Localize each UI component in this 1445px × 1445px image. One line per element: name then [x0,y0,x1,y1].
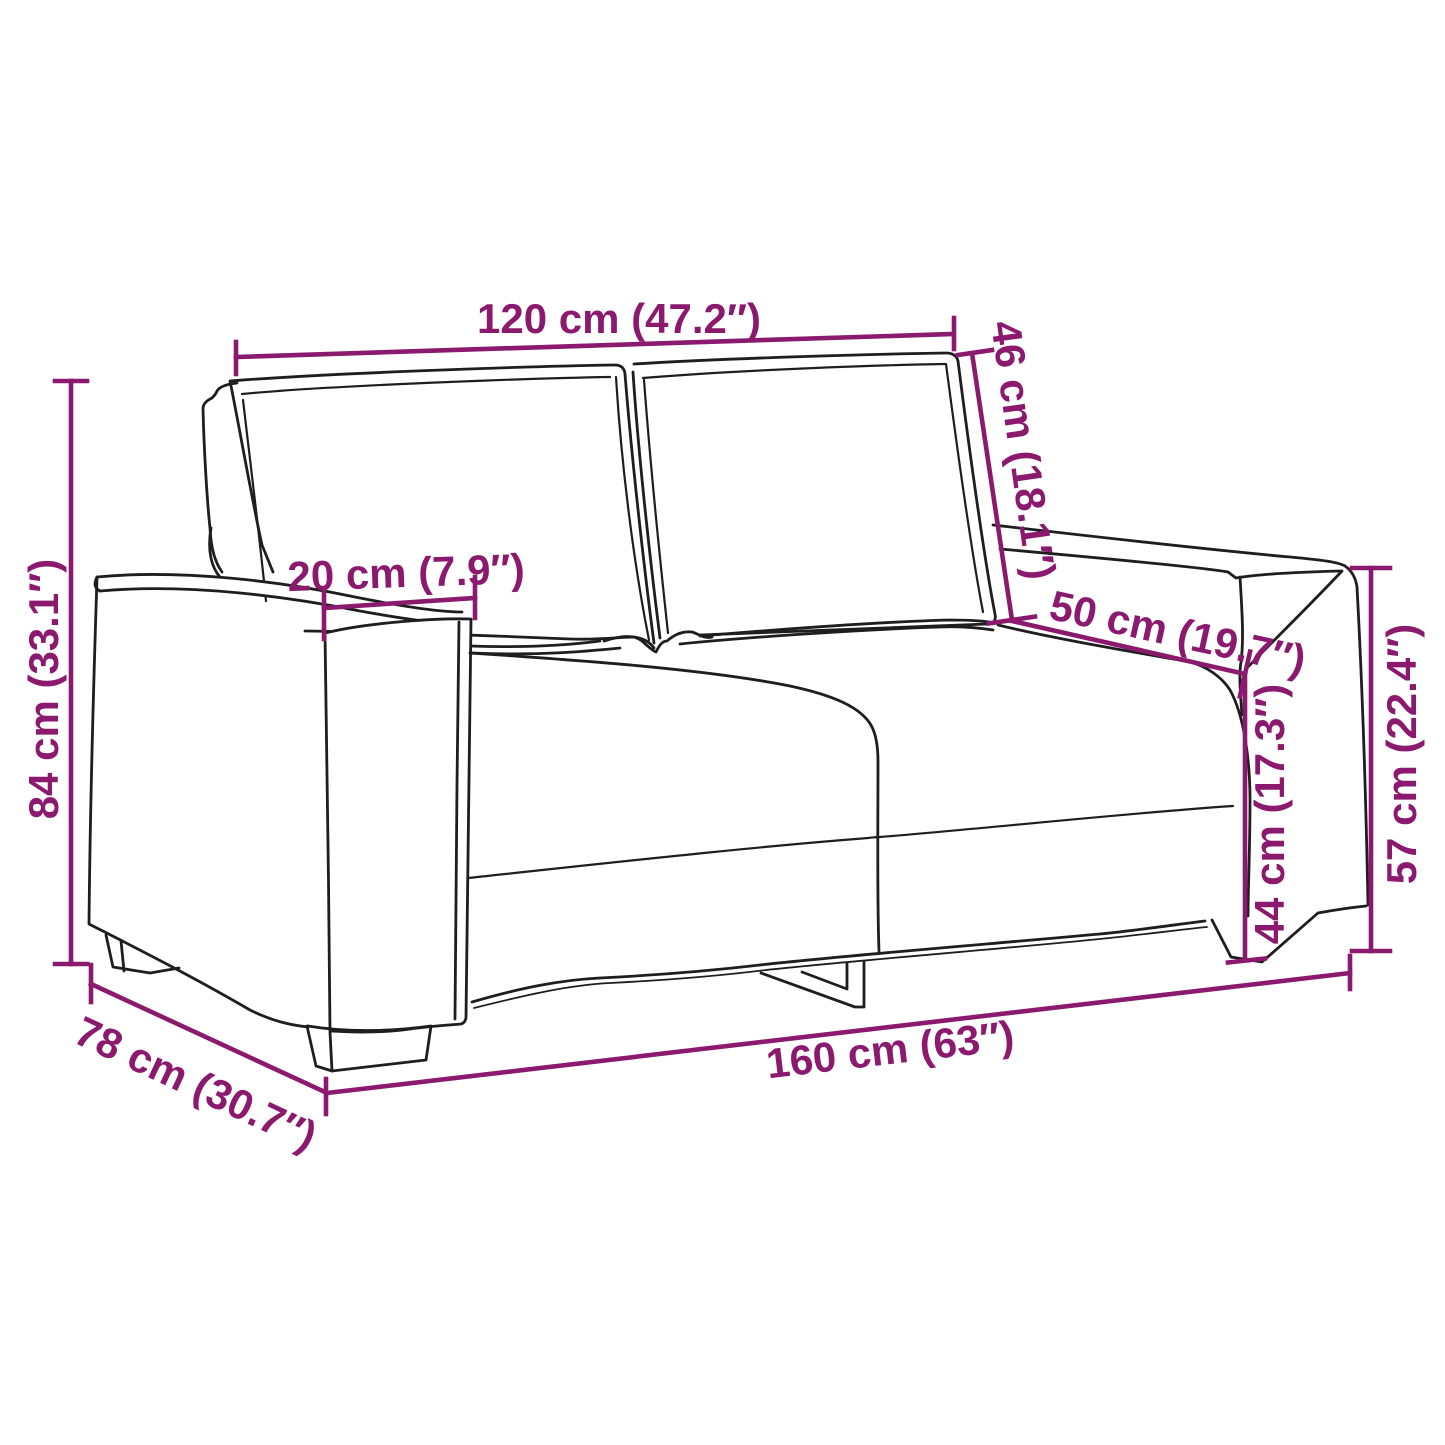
svg-text:20 cm (7.9″): 20 cm (7.9″) [287,545,526,600]
svg-text:44 cm (17.3″): 44 cm (17.3″) [1246,684,1293,945]
svg-text:120 cm (47.2″): 120 cm (47.2″) [477,295,761,342]
svg-text:84 cm (33.1″): 84 cm (33.1″) [20,559,67,820]
svg-text:57 cm (22.4″): 57 cm (22.4″) [1378,624,1425,885]
